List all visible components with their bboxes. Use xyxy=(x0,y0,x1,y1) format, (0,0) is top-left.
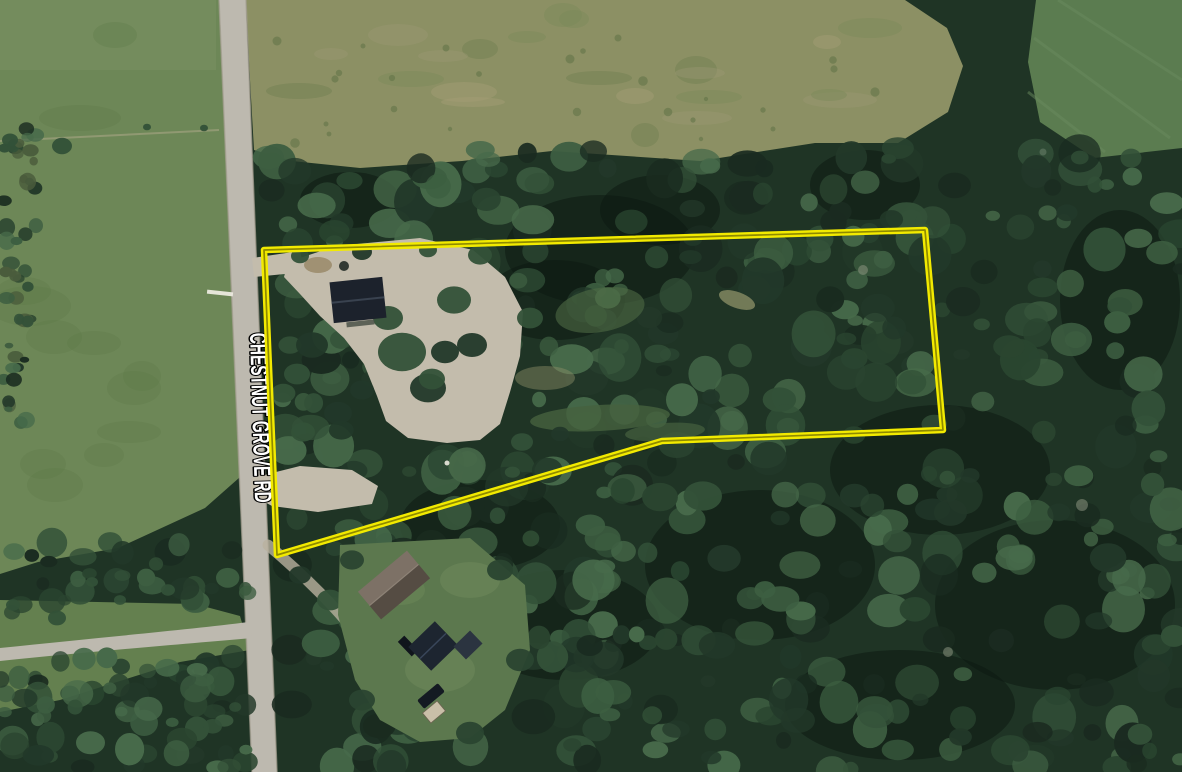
aerial-map: CHESTNUT GROVE RD xyxy=(0,0,1182,772)
aerial-scene: CHESTNUT GROVE RD xyxy=(0,0,1182,772)
scene-layers xyxy=(0,0,1182,772)
pasture-field xyxy=(0,0,248,574)
